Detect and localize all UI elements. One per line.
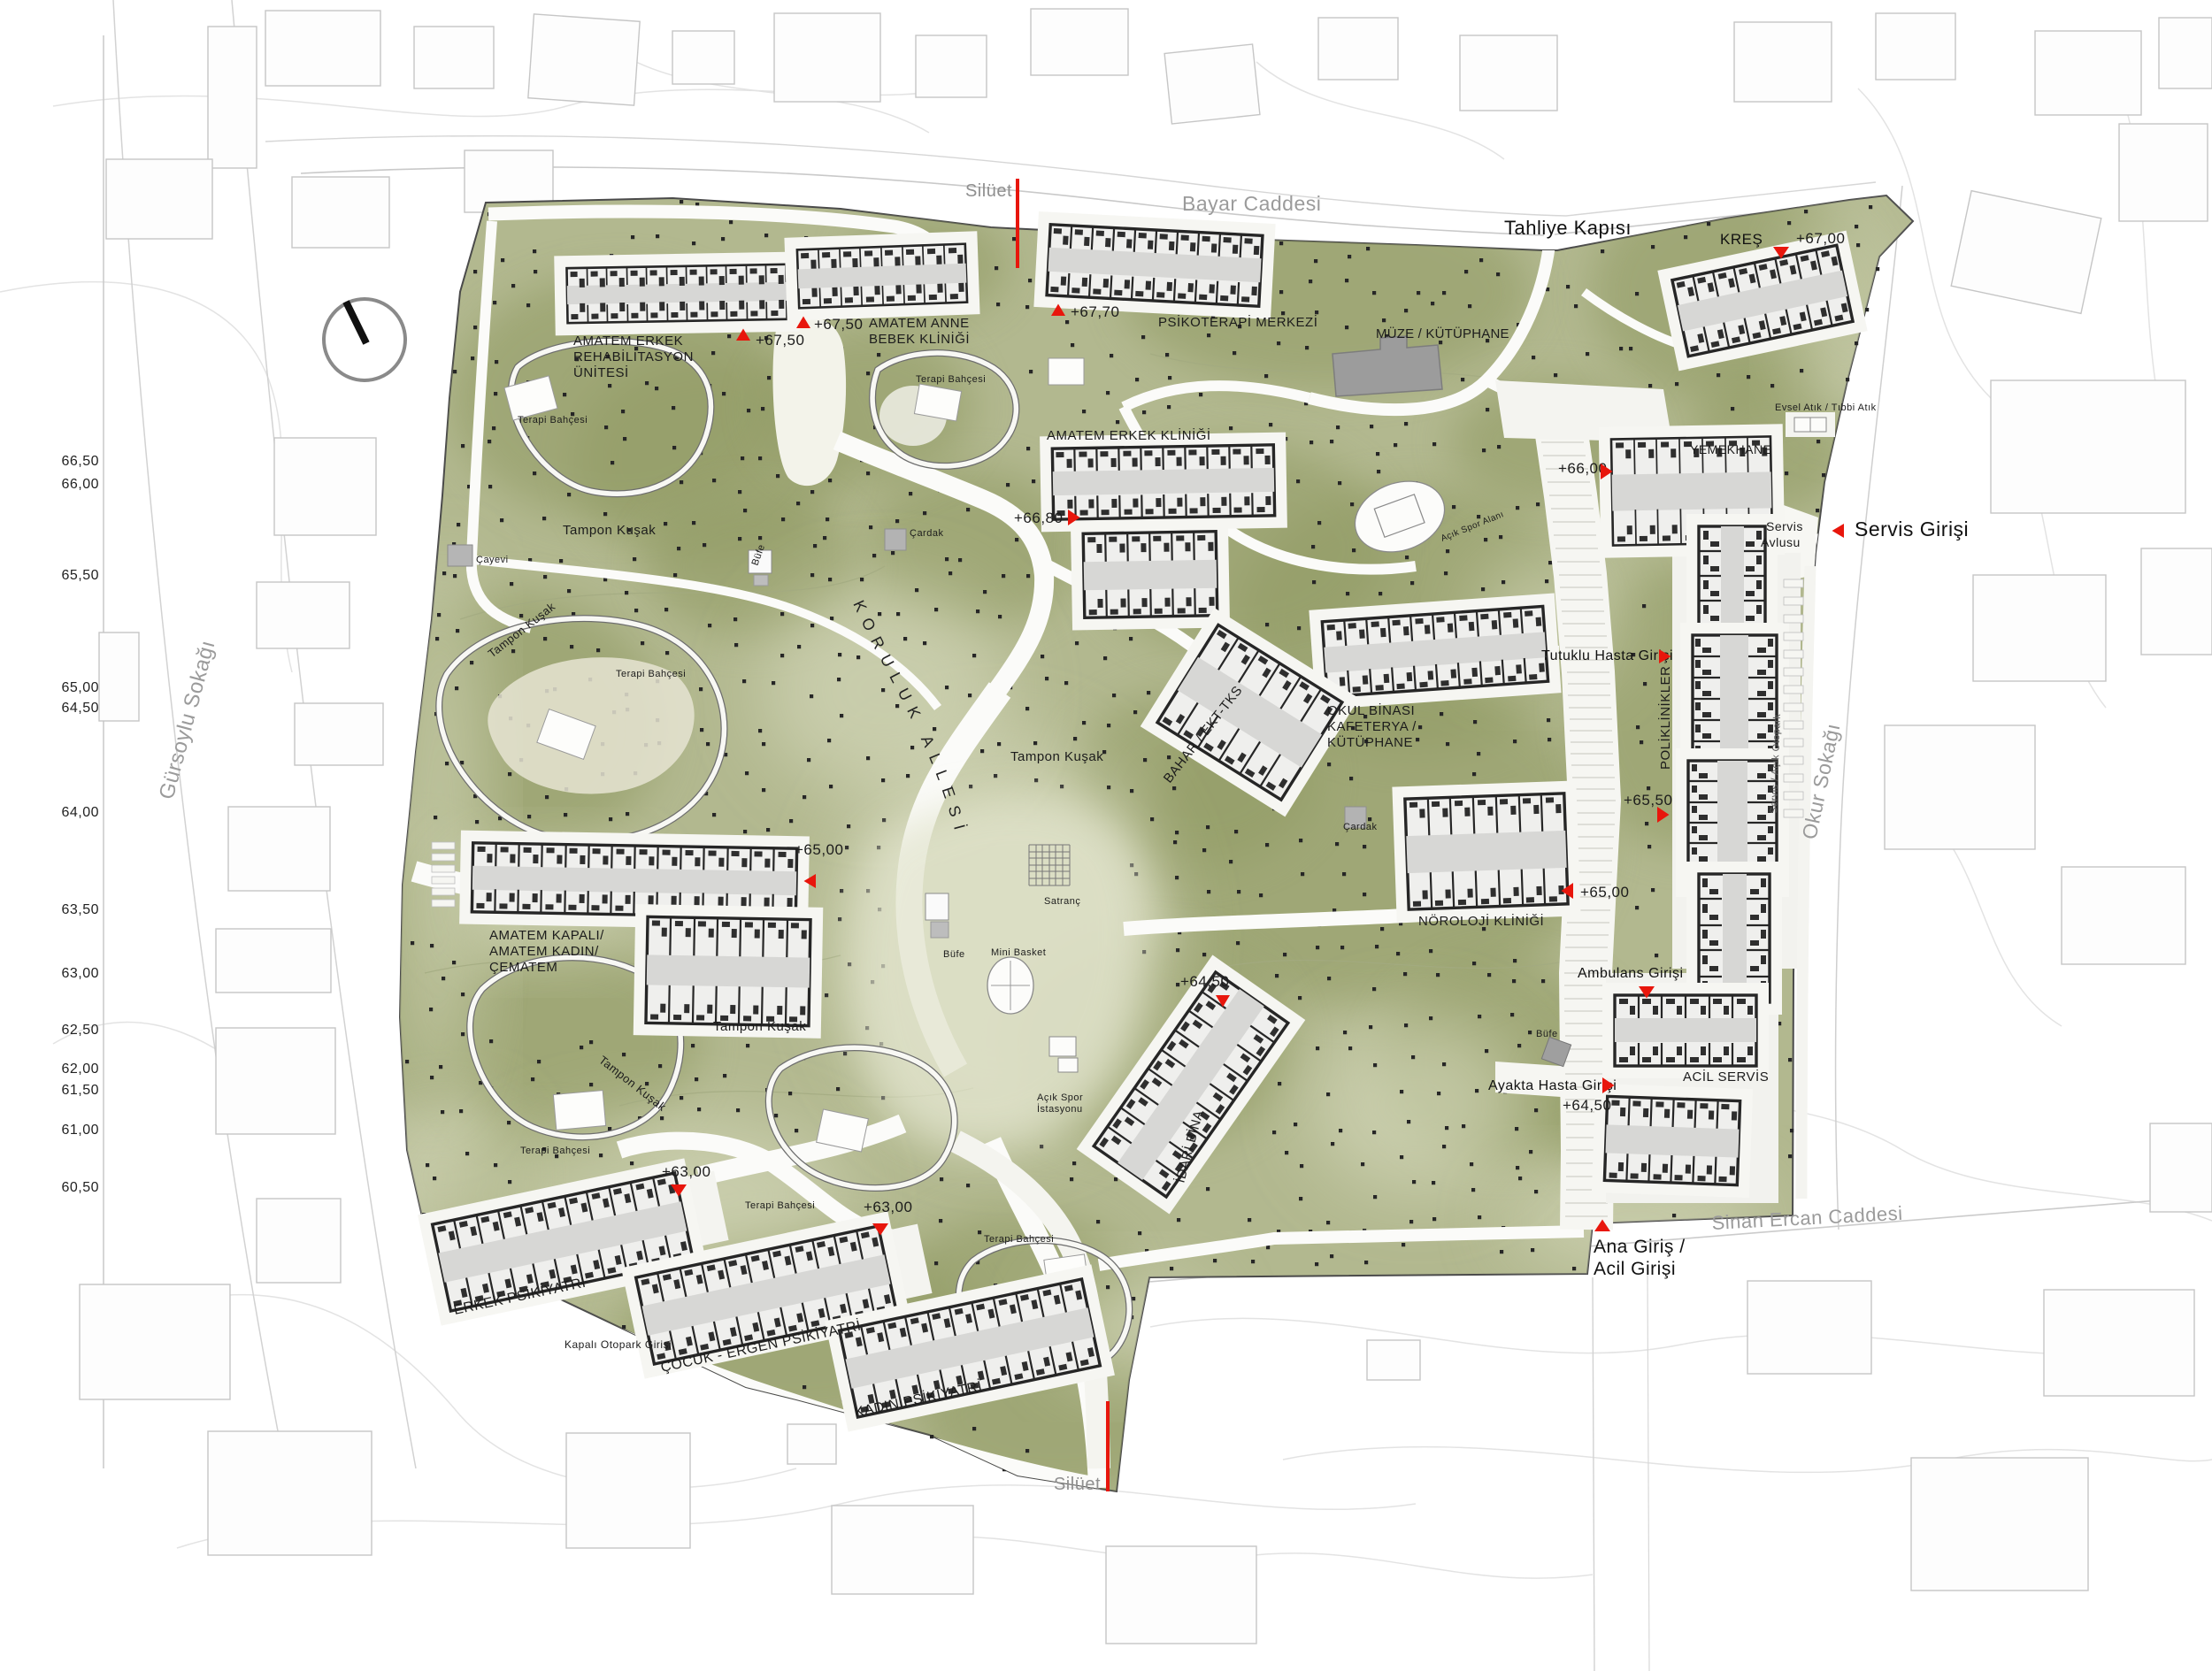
svg-text:+66,00: +66,00	[1558, 460, 1607, 477]
svg-text:+65,50: +65,50	[1624, 792, 1672, 809]
svg-text:Servis: Servis	[1766, 519, 1803, 533]
svg-text:Büfe: Büfe	[1536, 1029, 1558, 1039]
svg-text:+64,50: +64,50	[1563, 1097, 1611, 1114]
svg-text:63,00: 63,00	[61, 966, 99, 981]
svg-text:+67,00: +67,00	[1796, 230, 1845, 247]
svg-text:60,50: 60,50	[61, 1180, 99, 1195]
svg-text:63,50: 63,50	[61, 902, 99, 917]
svg-text:AMATEM ERKEK KLİNİĞİ: AMATEM ERKEK KLİNİĞİ	[1047, 427, 1211, 443]
svg-text:Bayar Caddesi: Bayar Caddesi	[1182, 192, 1321, 215]
svg-text:65,00: 65,00	[61, 680, 99, 695]
svg-text:Acil Girişi: Acil Girişi	[1594, 1259, 1676, 1279]
svg-text:Tahliye Kapısı: Tahliye Kapısı	[1504, 217, 1632, 239]
svg-text:REHABİLİTASYON: REHABİLİTASYON	[573, 349, 694, 364]
svg-text:Tutuklu Hasta Girişi: Tutuklu Hasta Girişi	[1541, 648, 1673, 663]
svg-text:+67,50: +67,50	[814, 316, 863, 333]
svg-text:AMATEM KADIN/: AMATEM KADIN/	[489, 944, 599, 959]
svg-text:+65,00: +65,00	[1580, 884, 1629, 901]
svg-text:ÜNİTESİ: ÜNİTESİ	[573, 364, 629, 380]
svg-text:OKUL BİNASI: OKUL BİNASI	[1327, 702, 1415, 718]
svg-text:ACİL SERVİS: ACİL SERVİS	[1683, 1069, 1769, 1085]
svg-text:Terapi Bahçesi: Terapi Bahçesi	[745, 1200, 815, 1211]
svg-text:+65,00: +65,00	[795, 841, 843, 858]
svg-text:Mini Basket: Mini Basket	[991, 947, 1046, 958]
svg-text:POLİKLİNİKLER: POLİKLİNİKLER	[1657, 666, 1673, 770]
svg-text:Terapi Bahçesi: Terapi Bahçesi	[518, 415, 588, 425]
svg-text:BEBEK KLİNİĞİ: BEBEK KLİNİĞİ	[869, 331, 970, 347]
svg-text:ÇEMATEM: ÇEMATEM	[489, 960, 557, 975]
svg-text:AMATEM KAPALI/: AMATEM KAPALI/	[489, 928, 604, 943]
svg-text:Ayakta Hasta Girişi: Ayakta Hasta Girişi	[1488, 1078, 1617, 1093]
svg-text:65,50: 65,50	[61, 568, 99, 583]
svg-text:YEMEKHANE: YEMEKHANE	[1690, 442, 1771, 456]
svg-text:KAFETERYA /: KAFETERYA /	[1327, 719, 1417, 734]
svg-text:KÜTÜPHANE: KÜTÜPHANE	[1327, 734, 1413, 750]
svg-text:AMATEM ERKEK: AMATEM ERKEK	[573, 333, 683, 349]
svg-text:62,50: 62,50	[61, 1023, 99, 1038]
svg-text:Terapi Bahçesi: Terapi Bahçesi	[520, 1146, 590, 1156]
svg-text:KREŞ: KREŞ	[1720, 231, 1763, 248]
svg-text:MÜZE / KÜTÜPHANE: MÜZE / KÜTÜPHANE	[1376, 326, 1509, 341]
svg-text:Ambulans Girişi: Ambulans Girişi	[1578, 966, 1684, 981]
svg-text:Tampon Kuşak: Tampon Kuşak	[713, 1019, 806, 1034]
svg-text:64,00: 64,00	[61, 805, 99, 820]
svg-text:Kapalı Otopark Girişi: Kapalı Otopark Girişi	[565, 1338, 672, 1351]
svg-text:Evsel Atık / Tıbbi Atık: Evsel Atık / Tıbbi Atık	[1775, 402, 1877, 413]
svg-text:+64,50: +64,50	[1180, 973, 1229, 990]
svg-text:62,00: 62,00	[61, 1062, 99, 1077]
svg-text:+66,80: +66,80	[1014, 510, 1063, 526]
svg-text:Çayevi: Çayevi	[476, 555, 509, 565]
svg-text:61,00: 61,00	[61, 1123, 99, 1138]
svg-text:Tampon Kuşak: Tampon Kuşak	[563, 523, 656, 538]
svg-text:64,50: 64,50	[61, 701, 99, 716]
svg-text:AMATEM ANNE: AMATEM ANNE	[869, 316, 970, 331]
svg-text:Terapi Bahçesi: Terapi Bahçesi	[984, 1234, 1054, 1245]
svg-text:Terapi Bahçesi: Terapi Bahçesi	[916, 374, 986, 385]
svg-text:Tampon Kuşak: Tampon Kuşak	[1010, 749, 1103, 764]
svg-text:Terapi Bahçesi: Terapi Bahçesi	[616, 669, 686, 679]
svg-text:Açık Spor: Açık Spor	[1037, 1092, 1083, 1103]
svg-text:Avlusu: Avlusu	[1761, 535, 1801, 549]
svg-text:Silüet: Silüet	[965, 181, 1012, 201]
svg-text:+63,00: +63,00	[864, 1199, 912, 1215]
svg-text:Çardak: Çardak	[910, 528, 943, 539]
svg-text:+67,50: +67,50	[756, 332, 804, 349]
svg-text:NÖROLOJİ KLİNİĞİ: NÖROLOJİ KLİNİĞİ	[1418, 913, 1544, 929]
svg-text:İstasyonu: İstasyonu	[1037, 1103, 1083, 1115]
svg-text:Çardak: Çardak	[1343, 822, 1377, 832]
svg-text:+67,70: +67,70	[1071, 303, 1119, 320]
svg-text:61,50: 61,50	[61, 1083, 99, 1098]
svg-text:66,00: 66,00	[61, 477, 99, 492]
svg-text:+63,00: +63,00	[662, 1163, 710, 1180]
svg-text:Büfe: Büfe	[943, 949, 965, 960]
svg-text:Silüet: Silüet	[1054, 1475, 1101, 1494]
svg-text:PSİKOTERAPİ MERKEZİ: PSİKOTERAPİ MERKEZİ	[1158, 314, 1317, 330]
svg-text:Ana Giriş /: Ana Giriş /	[1594, 1237, 1686, 1257]
svg-text:66,50: 66,50	[61, 454, 99, 469]
svg-text:Servis Girişi: Servis Girişi	[1855, 517, 1969, 540]
svg-text:Satranç: Satranç	[1044, 896, 1080, 907]
